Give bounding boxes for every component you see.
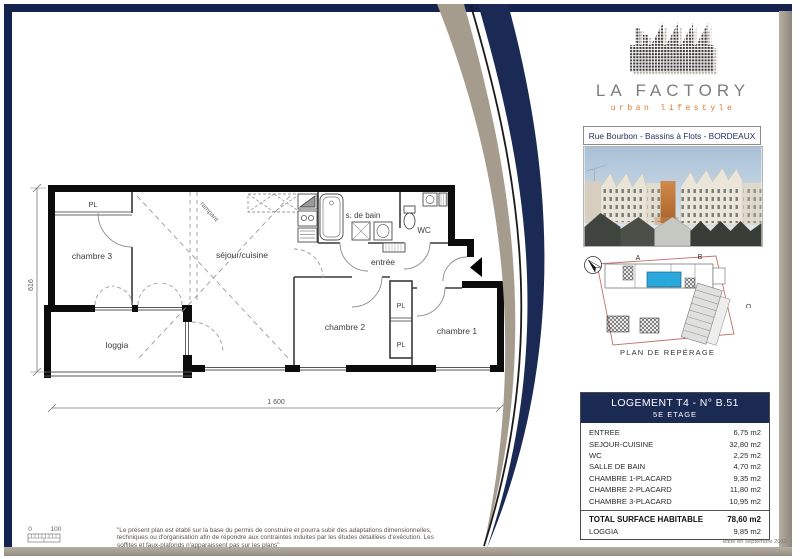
- table-row: SALLE DE BAIN 4,70 m2: [581, 461, 769, 472]
- site-plan: A B C PLAN DE REPÉRAGE: [583, 248, 768, 360]
- table-row: ENTREE 6,75 m2: [581, 427, 769, 438]
- dimension-width: 1 600: [267, 399, 285, 406]
- scale-start: 0: [28, 526, 32, 533]
- room-label-rampant: rampant: [198, 201, 219, 224]
- room-label: LOGGIA: [589, 527, 618, 536]
- table-row: SEJOUR-CUISINE 32,80 m2: [581, 438, 769, 449]
- highlighted-unit: [647, 272, 681, 287]
- room-label: CHAMBRE 1-PLACARD: [589, 474, 672, 483]
- room-area: 9,35 m2: [734, 474, 761, 483]
- room-area: 10,95 m2: [729, 497, 761, 506]
- room-label-entree: entrée: [371, 257, 395, 267]
- factory-logo-icon: [627, 16, 719, 76]
- area-table: LOGEMENT T4 - N° B.51 5E ETAGE ENTREE 6,…: [580, 392, 770, 540]
- table-row: CHAMBRE 3-PLACARD 10,95 m2: [581, 495, 769, 506]
- total-area: 78,60 m2: [727, 515, 761, 524]
- table-row: CHAMBRE 1-PLACARD 9,35 m2: [581, 473, 769, 484]
- room-area: 32,80 m2: [729, 440, 761, 449]
- entrance-arrow-icon: [470, 257, 482, 277]
- area-table-body: ENTREE 6,75 m2 SEJOUR-CUISINE 32,80 m2 W…: [581, 423, 769, 539]
- kitchen-fixtures: [298, 194, 317, 242]
- logo: LA FACTORY urban lifestyle: [585, 16, 761, 113]
- table-row: CHAMBRE 2-PLACARD 11,80 m2: [581, 484, 769, 495]
- room-area: 4,70 m2: [734, 462, 761, 471]
- brand-tagline: urban lifestyle: [585, 104, 761, 113]
- room-label-chambre3: chambre 3: [72, 251, 112, 261]
- room-label-sejour: séjour/cuisine: [216, 250, 268, 260]
- plan-sheet: PL chambre 3 séjour/cuisine rampant s. d…: [0, 0, 800, 559]
- room-label: WC: [589, 451, 602, 460]
- room-label-chambre2: chambre 2: [325, 322, 365, 332]
- block-label-c: C: [744, 303, 751, 308]
- room-label-wc: WC: [417, 226, 431, 235]
- block-label-b: B: [698, 254, 703, 261]
- brand-name: LA FACTORY: [585, 81, 761, 101]
- block-label-a: A: [636, 255, 641, 262]
- building-photo: [583, 146, 763, 247]
- site-plan-caption: PLAN DE REPÉRAGE: [620, 348, 715, 357]
- area-table-header: LOGEMENT T4 - N° B.51 5E ETAGE: [581, 393, 769, 423]
- table-total-row: TOTAL SURFACE HABITABLE 78,60 m2: [581, 513, 769, 526]
- room-area: 2,25 m2: [734, 451, 761, 460]
- north-arrow-icon: [583, 253, 605, 277]
- table-row: LOGGIA 9,85 m2: [581, 526, 769, 537]
- room-area: 11,80 m2: [730, 485, 761, 494]
- room-area: 9,85 m2: [734, 527, 761, 536]
- address-banner: Rue Bourbon - Bassins à Flots - BORDEAUX: [583, 126, 761, 145]
- dimension-height: 616: [28, 279, 35, 291]
- dimension-lines: [30, 184, 504, 412]
- room-label-loggia: loggia: [106, 340, 129, 350]
- room-area: 6,75 m2: [734, 428, 761, 437]
- room-label-pl-top: PL: [88, 200, 97, 209]
- room-label: SALLE DE BAIN: [589, 462, 645, 471]
- scale-bar: 0 100: [28, 526, 62, 542]
- room-label: SEJOUR-CUISINE: [589, 440, 653, 449]
- dashed-door-arcs: [95, 249, 323, 353]
- unit-title: LOGEMENT T4 - N° B.51: [581, 397, 769, 409]
- scale-end: 100: [51, 526, 62, 533]
- room-label-pl1: PL: [397, 303, 406, 310]
- table-separator: [581, 510, 769, 511]
- unit-floor: 5E ETAGE: [581, 410, 769, 419]
- floor-plan: PL chambre 3 séjour/cuisine rampant s. d…: [0, 0, 575, 559]
- disclaimer-text: "Le présent plan est établi sur la base …: [117, 527, 439, 549]
- room-label: ENTREE: [589, 428, 620, 437]
- page-edge-right: [779, 11, 792, 556]
- room-label-chambre1: chambre 1: [437, 326, 477, 336]
- table-row: WC 2,25 m2: [581, 450, 769, 461]
- room-label: CHAMBRE 2-PLACARD: [589, 485, 672, 494]
- edition-date: édité en septembre 2012: [695, 539, 787, 545]
- total-label: TOTAL SURFACE HABITABLE: [589, 515, 703, 524]
- wall-openings: [95, 305, 490, 372]
- room-label-sdb: s. de bain: [346, 211, 381, 220]
- room-label: CHAMBRE 3-PLACARD: [589, 497, 672, 506]
- room-label-pl2: PL: [397, 342, 406, 349]
